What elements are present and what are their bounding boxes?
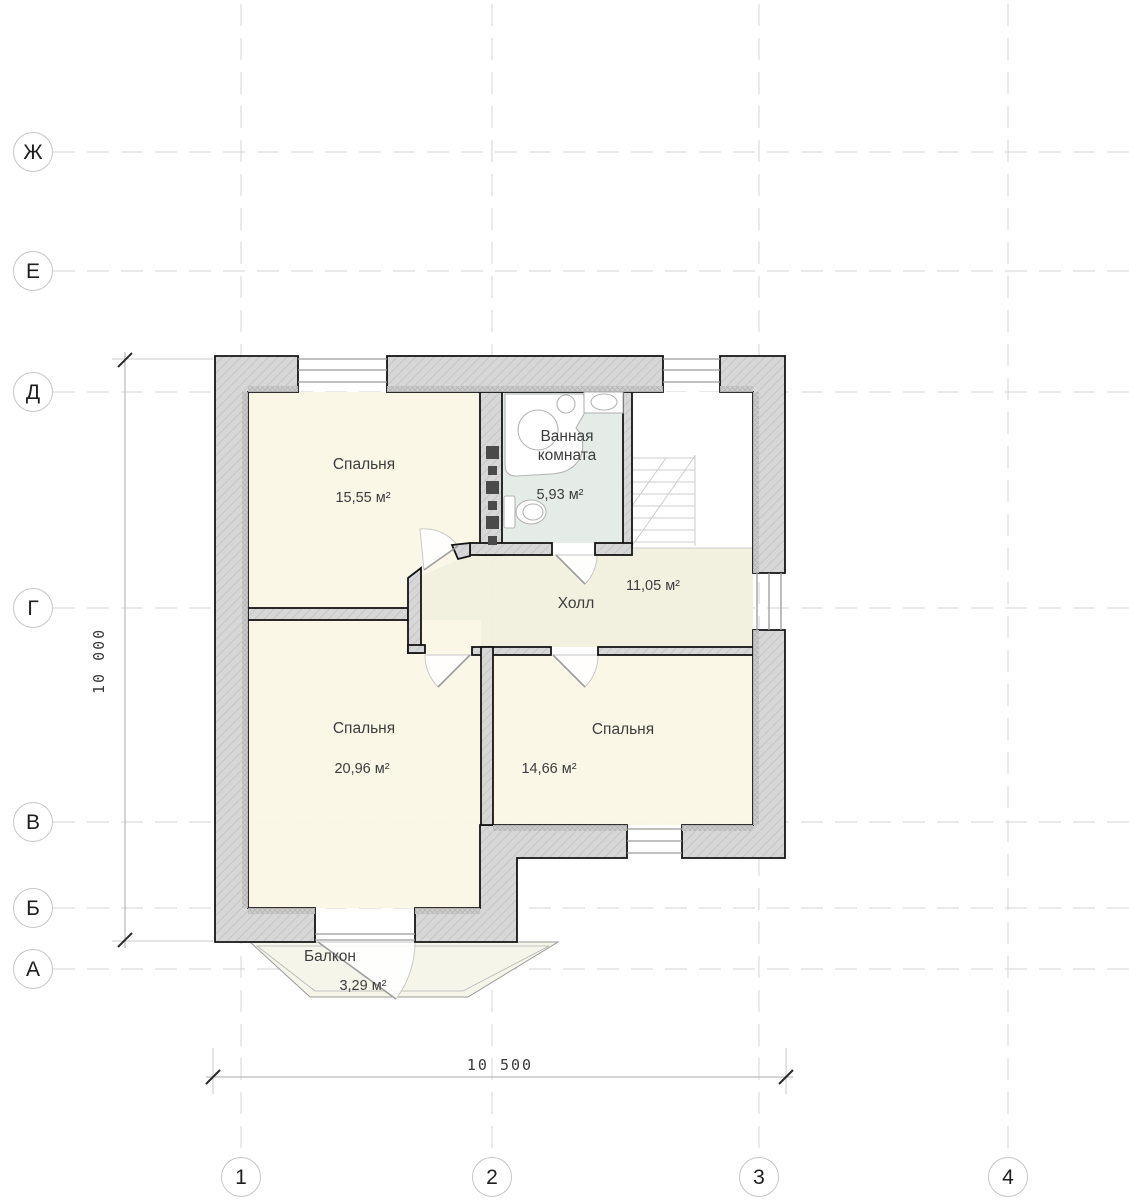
bedroom-right-floor (493, 655, 753, 825)
col-bubble-4: 4 (989, 1158, 1028, 1197)
dim-width-label: 10 500 (467, 1056, 533, 1074)
bedroom-left-area: 20,96 м² (334, 761, 389, 777)
row-label-d: Д (26, 381, 40, 404)
bathroom-area: 5,93 м² (536, 487, 583, 503)
window-bedroom-right (627, 829, 682, 853)
bathroom-label-1: Ванная (540, 428, 593, 445)
floor-plan-page: 10 000 10 500 (0, 0, 1129, 1200)
wall-hall-left (408, 568, 421, 653)
bedroom-left-label: Спальня (333, 720, 395, 737)
row-bubble-d: Д (14, 373, 53, 412)
bedroom-top-label: Спальня (333, 456, 395, 473)
sink-basin (591, 394, 617, 410)
toilet-bowl-inner (523, 504, 543, 520)
wall-hall-bottom-b (598, 647, 753, 655)
row-label-zh: Ж (23, 141, 43, 164)
wall-bedrooms-divider-v (481, 647, 493, 825)
window-stairwell (663, 359, 720, 382)
row-label-e: Е (26, 260, 40, 283)
window-hall-right (757, 573, 781, 630)
grid-bubbles-rows: Ж Е Д Г В Б А (14, 133, 53, 989)
col-label-3: 3 (753, 1166, 765, 1189)
bedroom-right-area: 14,66 м² (521, 761, 576, 777)
row-label-v: В (26, 811, 40, 834)
col-bubble-2: 2 (473, 1158, 512, 1197)
row-bubble-g: Г (14, 589, 53, 628)
row-bubble-e: Е (14, 252, 53, 291)
bedroom-right-label: Спальня (592, 721, 654, 738)
toilet-tank (504, 496, 515, 528)
row-bubble-a: А (14, 950, 53, 989)
floor-plan-svg: 10 000 10 500 (0, 0, 1129, 1200)
row-bubble-b: Б (14, 889, 53, 928)
hall-label: Холл (558, 595, 595, 612)
window-bedroom-top (298, 359, 387, 382)
wall-bathroom-right (623, 392, 632, 548)
col-label-4: 4 (1002, 1166, 1014, 1189)
bathroom-label-2: комната (538, 447, 597, 464)
wall-bedrooms-divider-h (248, 608, 408, 620)
row-label-b: Б (26, 897, 40, 920)
bathtub-corner (557, 395, 575, 413)
wall-bathroom-bottom-b (595, 543, 632, 555)
wall-hall-left-stub (408, 645, 425, 653)
grid-bubbles-cols: 1 2 3 4 (222, 1158, 1028, 1197)
bedroom-top-area: 15,55 м² (335, 490, 390, 506)
dimension-vertical: 10 000 (90, 352, 213, 948)
balcony-area: 3,29 м² (339, 978, 386, 994)
row-label-g: Г (27, 597, 38, 620)
wall-bathroom-bottom-a (470, 543, 552, 555)
dim-height-label: 10 000 (90, 628, 108, 694)
row-bubble-v: В (14, 803, 53, 842)
window-balcony-door (315, 934, 415, 940)
col-bubble-1: 1 (222, 1158, 261, 1197)
hall-area: 11,05 м² (626, 578, 680, 594)
col-label-2: 2 (486, 1166, 498, 1189)
col-bubble-3: 3 (740, 1158, 779, 1197)
row-label-a: А (26, 958, 40, 981)
balcony-label: Балкон (304, 948, 356, 965)
col-label-1: 1 (235, 1166, 247, 1189)
row-bubble-zh: Ж (14, 133, 53, 172)
dimension-horizontal: 10 500 (206, 1048, 793, 1094)
